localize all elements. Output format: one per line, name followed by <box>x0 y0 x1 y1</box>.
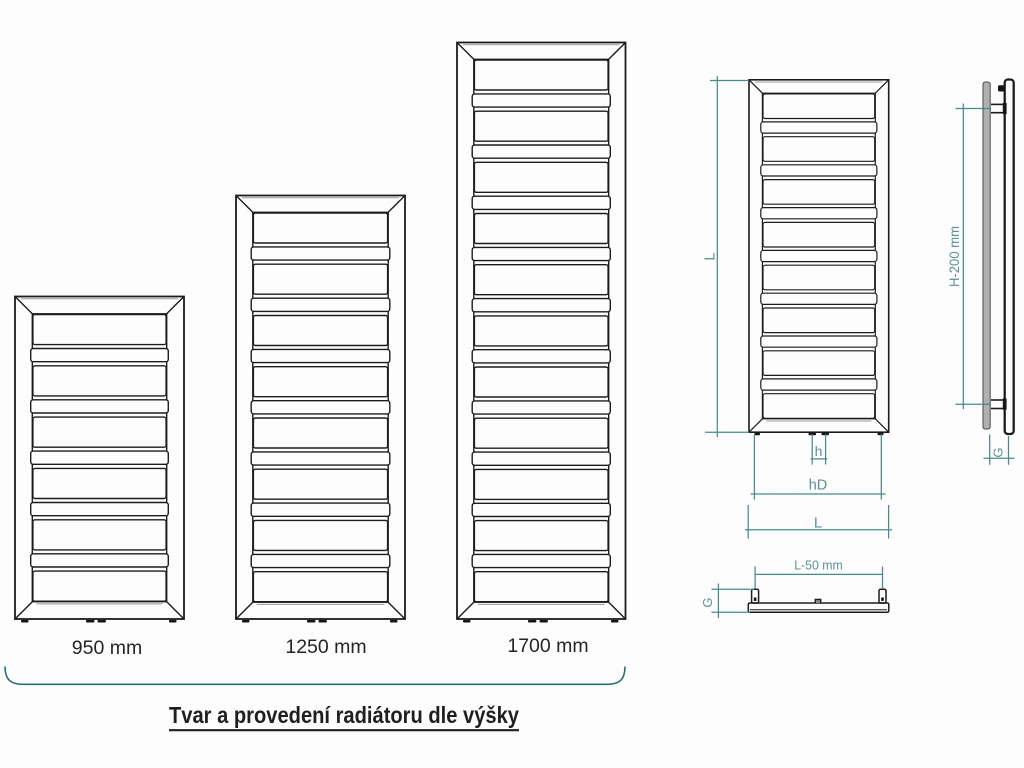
svg-text:L: L <box>702 252 719 260</box>
svg-text:Tvar a provedení radiátoru dle: Tvar a provedení radiátoru dle výšky <box>169 702 519 728</box>
svg-text:950 mm: 950 mm <box>72 637 142 659</box>
svg-text:h: h <box>815 443 823 459</box>
svg-text:H-200 mm: H-200 mm <box>946 226 962 287</box>
svg-text:G: G <box>991 447 1006 457</box>
svg-text:1700 mm: 1700 mm <box>507 635 588 657</box>
svg-text:G: G <box>700 598 715 608</box>
svg-text:L: L <box>814 515 822 532</box>
svg-text:L-50 mm: L-50 mm <box>794 558 843 573</box>
svg-text:1250 mm: 1250 mm <box>285 636 366 658</box>
svg-text:hD: hD <box>809 478 828 494</box>
